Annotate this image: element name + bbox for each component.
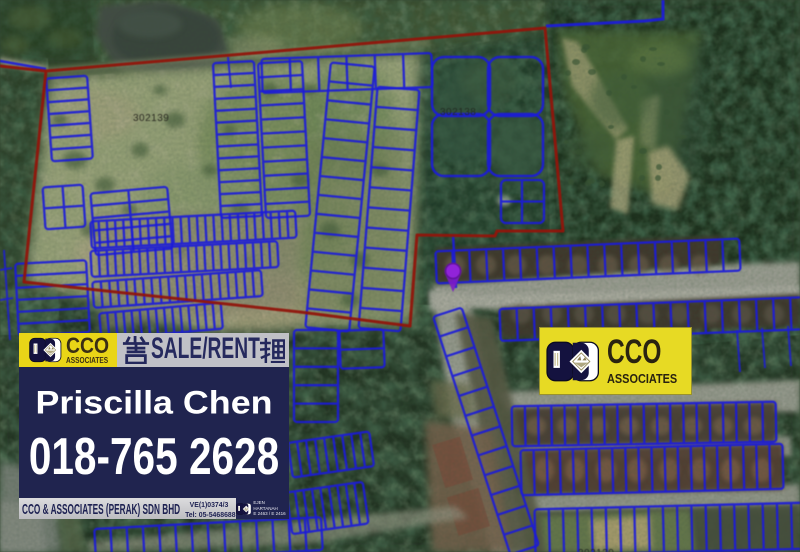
svg-text:302138: 302138 [440, 107, 476, 118]
svg-text:302130: 302130 [578, 548, 614, 552]
svg-text:302139: 302139 [133, 113, 169, 124]
